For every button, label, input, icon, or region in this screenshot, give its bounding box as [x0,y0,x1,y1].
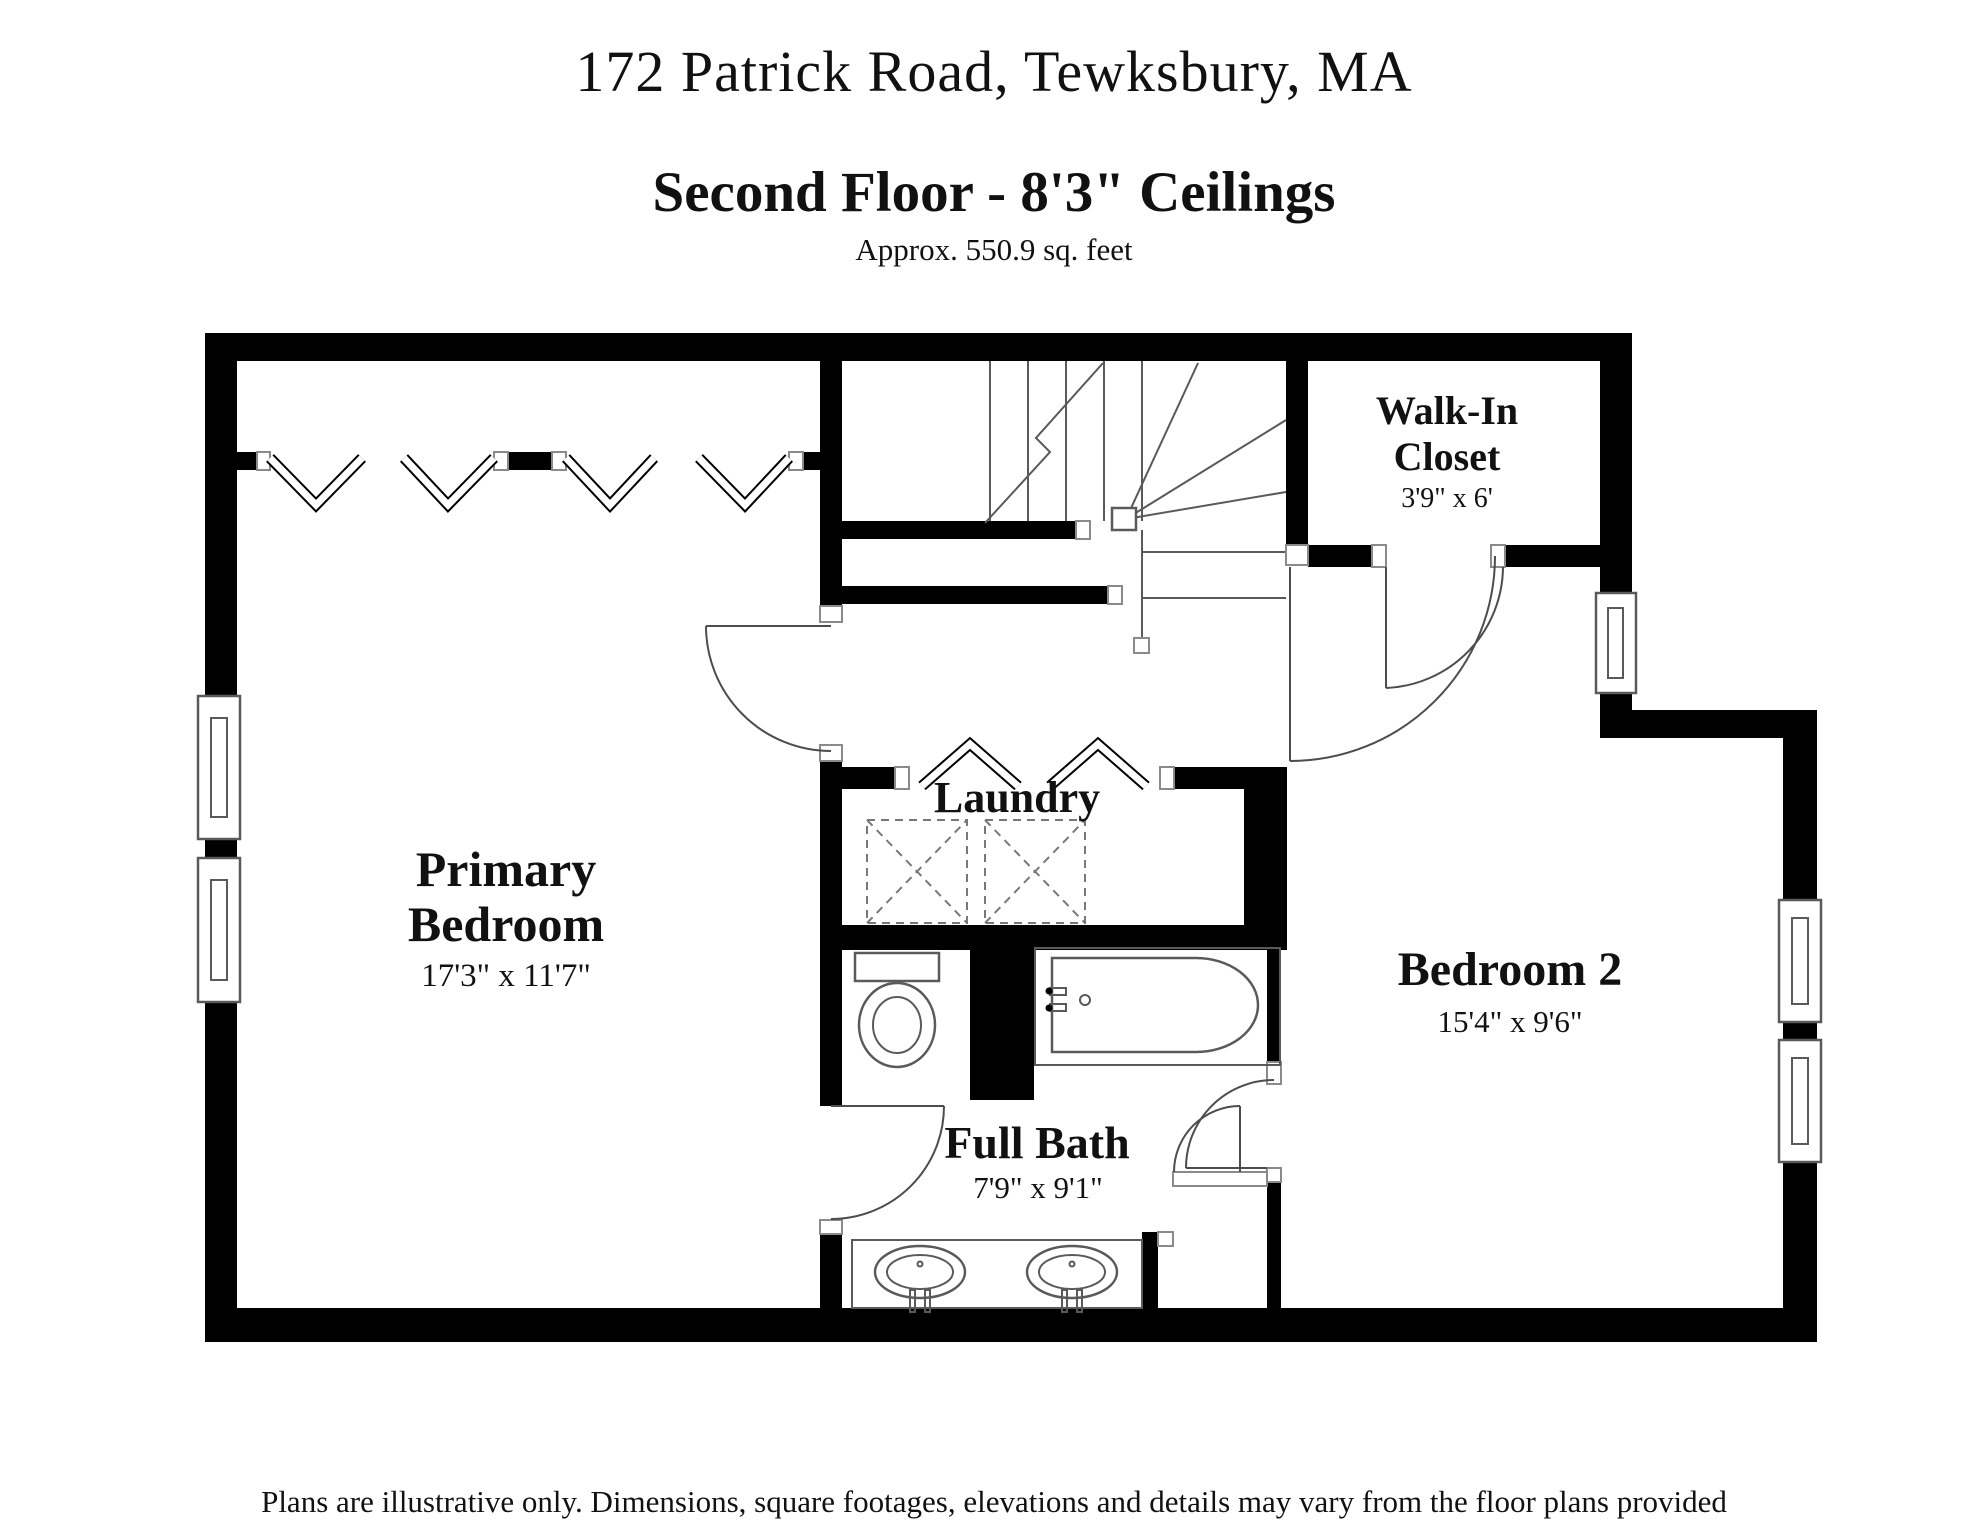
bedroom2-door [1173,1106,1267,1186]
window-bedroom2-2 [1779,1040,1821,1162]
window-bedroom2-1 [1779,900,1821,1022]
wall-closet-left [1286,361,1308,545]
wall-vestibule-right-upper [1267,948,1281,1062]
wall-vestibule-right-lower [1267,1182,1281,1308]
walk-in-closet-label-2: Closet [1394,434,1501,479]
wall-right-mid [1783,1022,1817,1040]
disclaimer-note: Plans are illustrative only. Dimensions,… [0,1484,1988,1520]
window-primary-1 [198,696,240,839]
primary-bedroom-label-2: Bedroom [408,896,604,952]
full-bath-door [1186,1080,1274,1168]
wall-step [1600,710,1817,738]
wall-stair-landing-lower [820,586,1108,604]
wall-closet-stub-a [237,452,257,470]
floor-plan: Primary Bedroom 17'3" x 11'7" Walk-In Cl… [0,0,1988,1536]
vanity-double-sink [852,1240,1142,1312]
wall-bottom [205,1308,1817,1342]
laundry-label: Laundry [934,773,1100,822]
sink-right [1027,1246,1117,1312]
wall-closet-bottom-right [1505,545,1600,567]
wall-vestibule-left [1142,1232,1158,1308]
bedroom2-dimensions: 15'4" x 9'6" [1438,1004,1583,1039]
walk-in-closet-label-1: Walk-In [1376,388,1518,433]
wall-left-upper [205,333,237,696]
wall-left-lower [205,1002,237,1342]
toilet [855,953,939,1067]
window-primary-2 [198,858,240,1002]
full-bath-label: Full Bath [944,1117,1129,1168]
wall-top [205,333,1632,361]
bathtub [1035,948,1280,1065]
wall-right-upper [1783,738,1817,900]
dryer [985,820,1085,923]
laundry-appliances [867,820,1085,923]
wall-laundry-bottom [820,925,1287,950]
wall-closet-stub-c [803,452,820,470]
wall-stair-landing-upper [842,521,1076,539]
washer [867,820,967,923]
primary-bedroom-dimensions: 17'3" x 11'7" [421,958,591,994]
sink-left [875,1246,965,1312]
wall-primary-bath-stub [820,1234,842,1308]
stair-break-line [985,363,1103,523]
stair-newel [1112,508,1136,530]
walk-in-closet-door [1386,567,1503,688]
wall-laundry-right [1244,767,1287,950]
wall-closet-stub-b [508,452,552,470]
primary-bedroom-label-1: Primary [416,841,596,897]
wall-left-mid [205,839,237,858]
wall-closet-right-upper [1600,333,1632,593]
primary-to-bath-door [831,1106,944,1219]
wall-plumbing-chase [970,950,1034,1100]
walk-in-closet-dimensions: 3'9" x 6' [1401,483,1493,514]
wall-closet-bottom-left [1308,545,1372,567]
window-hall-right [1596,593,1636,693]
hallway-vestibule-door [1290,556,1495,761]
primary-bedroom-door [706,626,831,751]
bedroom2-label: Bedroom 2 [1398,943,1622,996]
wall-right-lower [1783,1162,1817,1342]
wall-laundry-top-right [1174,767,1244,789]
full-bath-dimensions: 7'9" x 9'1" [973,1170,1102,1205]
wall-hall-primary-upper [820,361,842,606]
